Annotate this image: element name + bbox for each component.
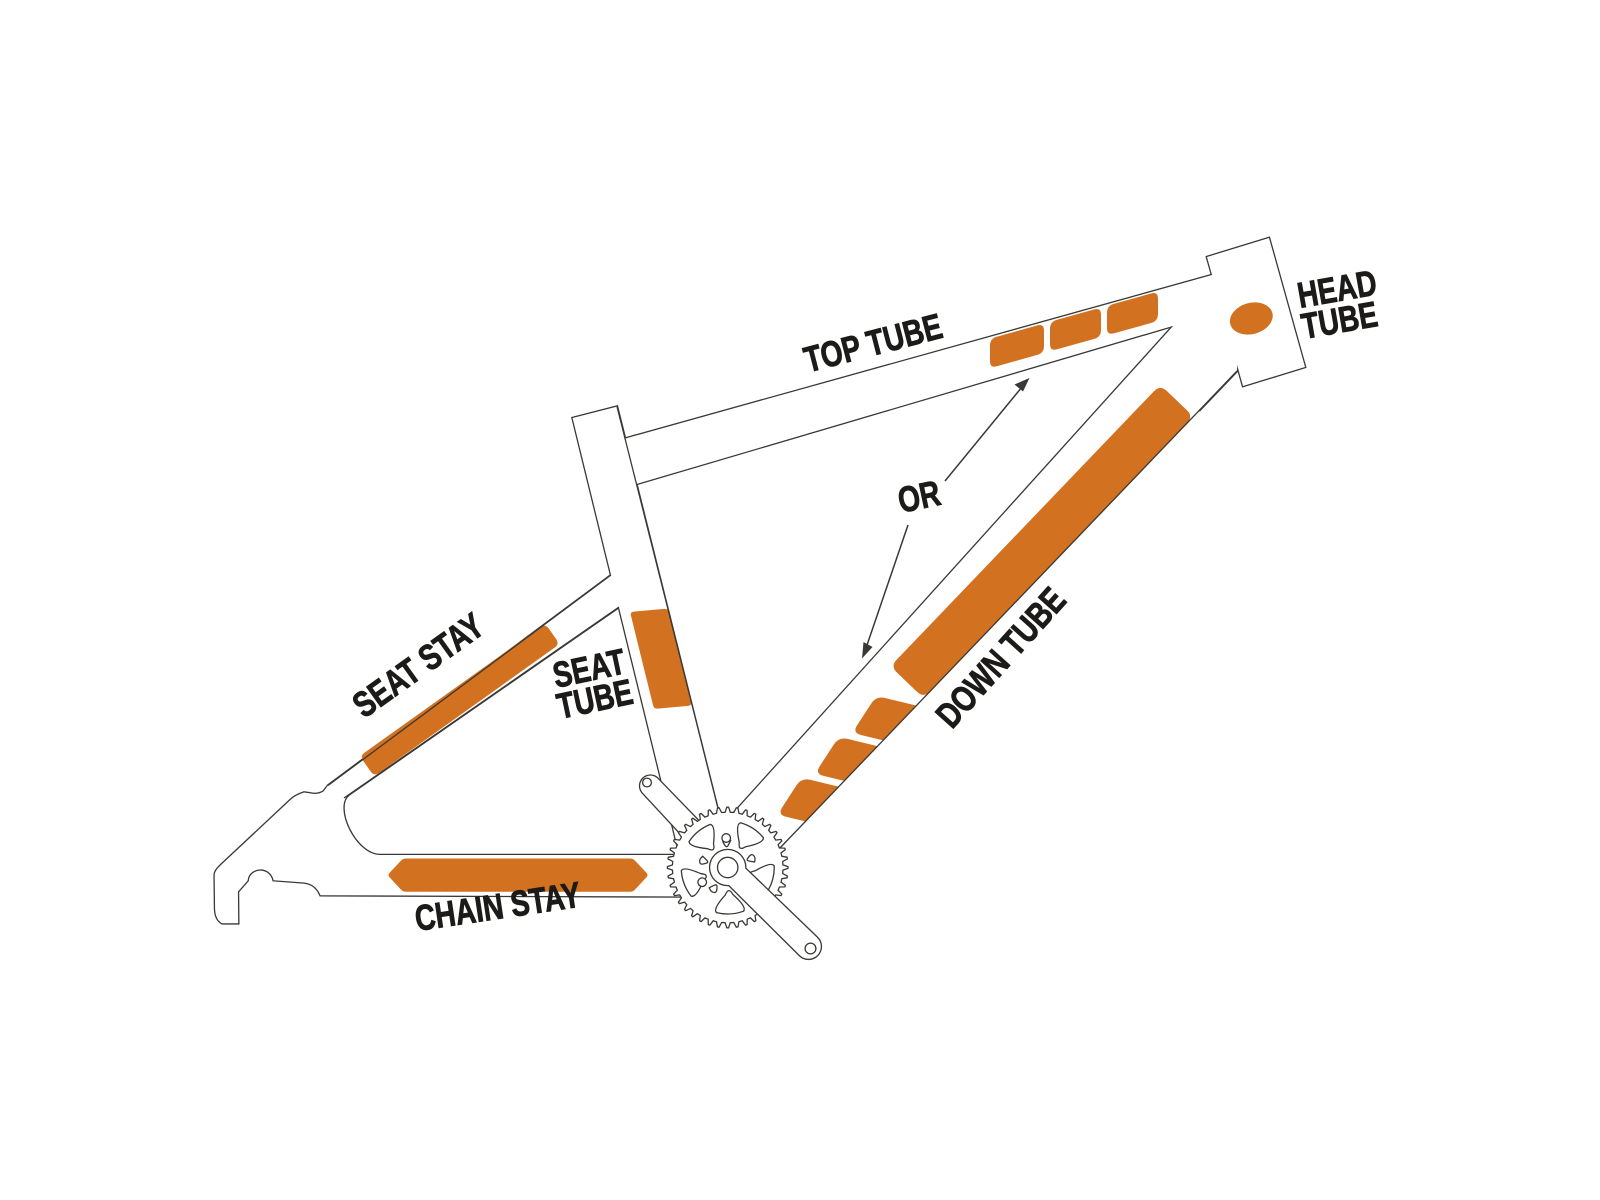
svg-text:OR: OR [894, 473, 944, 521]
